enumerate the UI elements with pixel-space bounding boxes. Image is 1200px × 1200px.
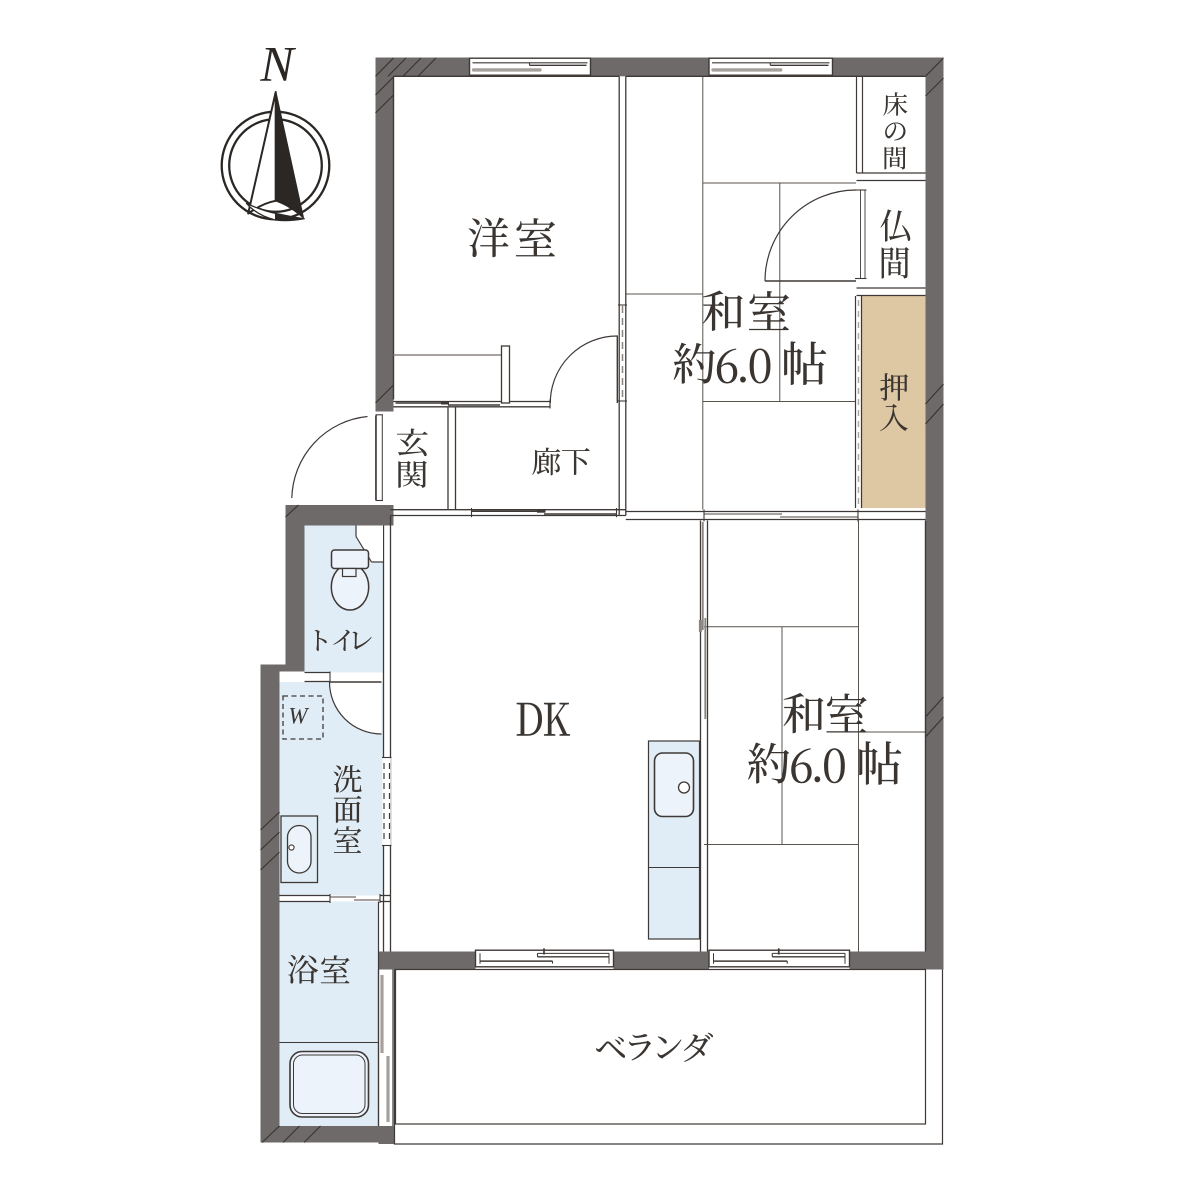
svg-text:N: N <box>259 36 296 92</box>
svg-text:W: W <box>288 704 309 729</box>
